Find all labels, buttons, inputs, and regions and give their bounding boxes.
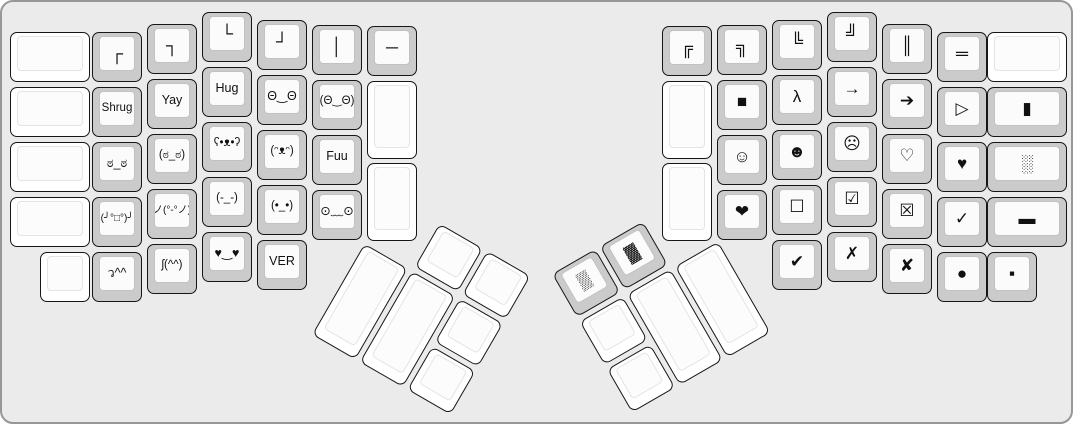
keycap-face: ➔ xyxy=(889,83,925,118)
keycap-face: ▪ xyxy=(994,256,1030,291)
keycap-double-box-bottom-left[interactable]: ╚ xyxy=(772,20,822,70)
keycap-face: ♥ xyxy=(944,146,980,181)
keycap-ballot-box[interactable]: ☐ xyxy=(772,185,822,235)
keycap-legend: ■ xyxy=(737,93,747,110)
keycap-legend: ❤ xyxy=(735,203,749,220)
keycap-check-mark[interactable]: ✓ xyxy=(937,197,987,247)
keycap-blank[interactable] xyxy=(662,81,712,159)
keycap-white-smiley[interactable]: ☺ xyxy=(717,135,767,185)
keycap-black-vertical-rect[interactable]: ▮ xyxy=(987,87,1067,137)
keycap-white-triangle-right[interactable]: ▷ xyxy=(937,87,987,137)
keycap-double-box-bottom-right[interactable]: ╝ xyxy=(827,12,877,62)
keycap-lambda[interactable]: λ xyxy=(772,75,822,125)
keycap-legend: ╗ xyxy=(736,38,748,55)
keycap-face: ░ xyxy=(994,146,1060,181)
keyboard-layout: ┌Shrugಠ_ಠ(╯°□°)╯ว^^┐Yay(ಠ_ಠ)ノ(°-°ノ)ʃ(^^)… xyxy=(0,0,1073,424)
keycap-black-square[interactable]: ■ xyxy=(717,80,767,130)
keycap-frowning-face[interactable]: ☹ xyxy=(827,122,877,172)
keycap-double-box-top-right[interactable]: ╗ xyxy=(717,25,767,75)
keycap-heavy-arrow-right[interactable]: ➔ xyxy=(882,79,932,129)
keycap-legend: ☑ xyxy=(844,190,859,207)
keycap-black-rect[interactable]: ▬ xyxy=(987,197,1067,247)
keycap-legend: ╚ xyxy=(791,33,803,50)
keycap-face: ✓ xyxy=(944,201,980,236)
keycap-black-circle[interactable]: ● xyxy=(937,252,987,302)
keycap-face: ☻ xyxy=(779,134,815,169)
keycap-legend: ✗ xyxy=(845,245,859,262)
keycap-heavy-ballot-x[interactable]: ✘ xyxy=(882,244,932,294)
keycap-legend: ║ xyxy=(901,37,913,54)
keycap-face: ✔ xyxy=(779,244,815,279)
keycap-heavy-check-mark[interactable]: ✔ xyxy=(772,240,822,290)
keycap-ballot-x[interactable]: ✗ xyxy=(827,232,877,282)
keycap-blank[interactable] xyxy=(987,32,1067,82)
keycap-legend: λ xyxy=(793,88,802,105)
keycap-face: ╗ xyxy=(724,29,760,64)
keycap-legend: ✔ xyxy=(790,253,804,270)
keycap-legend: ♥ xyxy=(957,155,967,172)
keycap-double-box-horizontal[interactable]: ═ xyxy=(937,32,987,82)
keycap-face: ❤ xyxy=(724,194,760,229)
keycap-legend: ✘ xyxy=(900,257,914,274)
keycap-white-heart[interactable]: ♡ xyxy=(882,134,932,184)
keycap-face: ║ xyxy=(889,28,925,63)
keycap-legend: ▪ xyxy=(1009,265,1015,282)
keycap-face: ╝ xyxy=(834,16,870,51)
keycap-ballot-box-check[interactable]: ☑ xyxy=(827,177,877,227)
keycap-face: ☹ xyxy=(834,126,870,161)
keycap-legend: ✓ xyxy=(955,210,969,227)
keycap-face: ✘ xyxy=(889,248,925,283)
keycap-face: ☐ xyxy=(779,189,815,224)
keycap-face: λ xyxy=(779,79,815,114)
keycap-face: ■ xyxy=(724,84,760,119)
keycap-legend: ☺ xyxy=(733,148,750,165)
keycap-face xyxy=(669,85,705,148)
keycap-face: ☑ xyxy=(834,181,870,216)
keycap-black-heart[interactable]: ♥ xyxy=(937,142,987,192)
keycap-black-small-square[interactable]: ▪ xyxy=(987,252,1037,302)
keycap-legend: ➔ xyxy=(900,92,914,109)
keycap-legend: ☒ xyxy=(899,202,914,219)
keycap-black-smiley[interactable]: ☻ xyxy=(772,130,822,180)
keycap-legend: ╝ xyxy=(846,25,858,42)
keycap-face: ▷ xyxy=(944,91,980,126)
keycap-face: ☺ xyxy=(724,139,760,174)
keycap-face: ● xyxy=(944,256,980,291)
keycap-face: ✗ xyxy=(834,236,870,271)
keycap-face xyxy=(669,167,705,230)
keycap-double-box-vertical[interactable]: ║ xyxy=(882,24,932,74)
keycap-heavy-heart[interactable]: ❤ xyxy=(717,190,767,240)
keycap-arrow-right[interactable]: → xyxy=(827,67,877,117)
keycap-legend: ● xyxy=(957,265,967,282)
keycap-face: ♡ xyxy=(889,138,925,173)
keycap-legend: ☹ xyxy=(843,135,861,152)
keycap-double-box-top-left[interactable]: ╔ xyxy=(662,26,712,76)
keycap-face xyxy=(994,36,1060,71)
keycap-light-shade[interactable]: ░ xyxy=(987,142,1067,192)
keycap-legend: ░ xyxy=(1021,155,1033,172)
keycap-face: ▮ xyxy=(994,91,1060,126)
keycap-legend: ☐ xyxy=(789,198,804,215)
keycap-legend: ▷ xyxy=(955,100,968,117)
keycap-legend: ☻ xyxy=(788,143,806,160)
keycap-legend: ╔ xyxy=(681,39,693,56)
keycap-legend: ▬ xyxy=(1019,210,1036,227)
keycap-legend: → xyxy=(844,80,861,97)
keycap-legend: ♡ xyxy=(899,147,914,164)
keycap-ballot-box-x[interactable]: ☒ xyxy=(882,189,932,239)
keycap-legend: ▮ xyxy=(1022,100,1031,117)
right-half: ╔╗■☺❤╚λ☻☐✔╝→☹☑✗║➔♡☒✘═▷♥✓●▮░▬▪ xyxy=(2,2,1071,422)
keycap-face: ═ xyxy=(944,36,980,71)
keycap-face: ╔ xyxy=(669,30,705,65)
keycap-legend: ▓ xyxy=(622,242,641,263)
keycap-face: → xyxy=(834,71,870,106)
keycap-face: ╚ xyxy=(779,24,815,59)
keycap-face: ▬ xyxy=(994,201,1060,236)
keycap-face: ☒ xyxy=(889,193,925,228)
keycap-legend: ▒ xyxy=(575,270,594,291)
keycap-blank[interactable] xyxy=(662,163,712,241)
keycap-legend: ═ xyxy=(956,45,968,62)
